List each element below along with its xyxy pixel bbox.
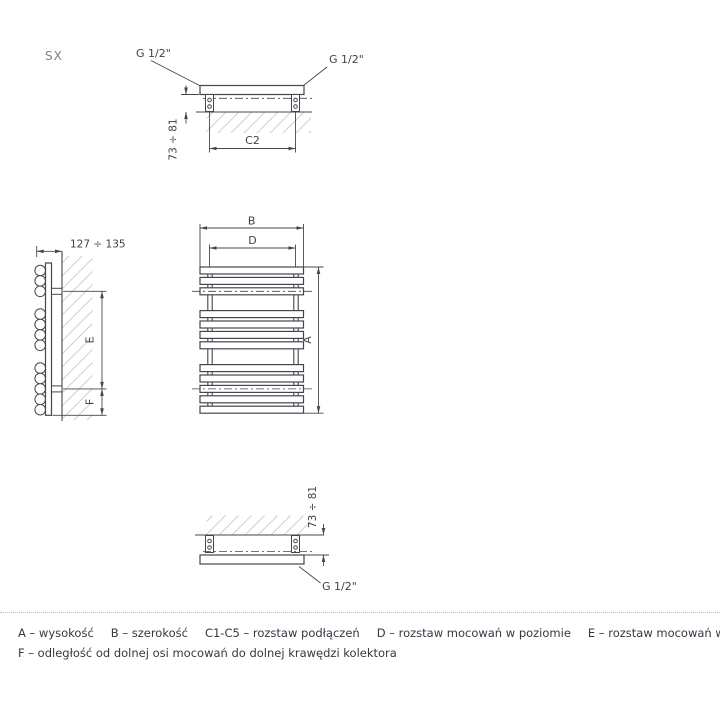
radiator-dimension-drawing: SX G 1/2" G 1/2" — [0, 0, 720, 612]
dimension-legend: A – wysokość B – szerokość C1-C5 – rozst… — [18, 626, 708, 660]
dimension-label-wall-distance: 127 ÷ 135 — [70, 239, 126, 251]
tube-end — [35, 286, 46, 297]
tube-end — [35, 363, 46, 374]
leader-line — [299, 567, 321, 584]
side-bracket-lower — [52, 386, 63, 392]
radiator-bar — [200, 396, 304, 403]
legend-item-b: B – szerokość — [111, 626, 188, 640]
tube-end — [35, 404, 46, 415]
wall-bracket-right — [292, 95, 300, 112]
tube-end — [35, 330, 46, 341]
radiator-bar — [200, 331, 304, 338]
wall-bracket-right — [292, 536, 300, 553]
leader-line — [304, 67, 328, 86]
thread-size-label-bottom: G 1/2" — [322, 580, 357, 593]
tube-end — [35, 265, 46, 276]
dimension-label-b: B — [248, 214, 256, 227]
tube-cross-sections — [35, 265, 46, 415]
legend-item-a: A – wysokość — [18, 626, 94, 640]
front-view: B D A — [192, 214, 324, 413]
tube-end — [35, 309, 46, 320]
legend-item-e: E – rozstaw mocowań w pionie — [588, 626, 720, 640]
radiator-bar — [200, 365, 304, 372]
legend-item-f: F – odległość od dolnej osi mocowań do d… — [18, 646, 397, 660]
radiator-bars — [200, 267, 304, 413]
thread-size-label-top-right: G 1/2" — [329, 53, 364, 66]
collector-top-view — [200, 86, 304, 95]
collector-side-view — [46, 263, 52, 415]
radiator-bar — [200, 375, 304, 382]
variant-label: SX — [45, 49, 63, 63]
tube-end — [35, 276, 46, 287]
radiator-bar — [200, 267, 304, 274]
bottom-view: 73 ÷ 81 G 1/2" — [195, 486, 357, 593]
legend-item-d: D – rozstaw mocowań w poziomie — [377, 626, 571, 640]
dimension-depth-bottom: 73 ÷ 81 — [305, 486, 330, 566]
radiator-bar — [200, 406, 304, 413]
dimension-label-f: F — [84, 399, 97, 405]
wall-bracket-left — [206, 536, 214, 553]
tube-end — [35, 384, 46, 395]
thread-size-label-top-left: G 1/2" — [136, 47, 171, 60]
wall-bracket-left — [206, 95, 214, 112]
dimension-depth-top: 73 ÷ 81 — [168, 86, 200, 161]
radiator-bar — [200, 321, 304, 328]
dimension-label-depth-top: 73 ÷ 81 — [168, 118, 180, 160]
dimension-label-a: A — [301, 336, 314, 344]
legend-item-c: C1-C5 – rozstaw podłączeń — [205, 626, 360, 640]
dimension-label-e: E — [84, 336, 97, 343]
radiator-bar — [200, 342, 304, 349]
dimension-label-d: D — [248, 234, 256, 247]
tube-end — [35, 373, 46, 384]
tube-end — [35, 319, 46, 330]
wall-hatching — [207, 516, 311, 535]
dimension-wall-distance: 127 ÷ 135 — [37, 239, 126, 258]
legend-line-2: F – odległość od dolnej osi mocowań do d… — [18, 646, 708, 660]
radiator-bar — [200, 311, 304, 318]
radiator-bar — [200, 277, 304, 284]
technical-drawing-page: SX G 1/2" G 1/2" — [0, 0, 720, 720]
tube-end — [35, 394, 46, 405]
collector-bottom-view — [200, 555, 304, 564]
dimension-label-depth-bottom: 73 ÷ 81 — [307, 486, 319, 528]
legend-line-1: A – wysokość B – szerokość C1-C5 – rozst… — [18, 626, 708, 640]
dimension-d: D — [210, 234, 296, 266]
side-bracket-upper — [52, 288, 63, 294]
section-divider — [0, 612, 720, 613]
dimension-a: A — [301, 267, 324, 413]
leader-line — [151, 61, 200, 86]
top-view: G 1/2" G 1/2" 73 ÷ 81 — [136, 47, 364, 161]
dimension-label-c2: C2 — [245, 134, 260, 147]
side-view: 127 ÷ 135 E F — [35, 239, 126, 422]
tube-end — [35, 340, 46, 351]
